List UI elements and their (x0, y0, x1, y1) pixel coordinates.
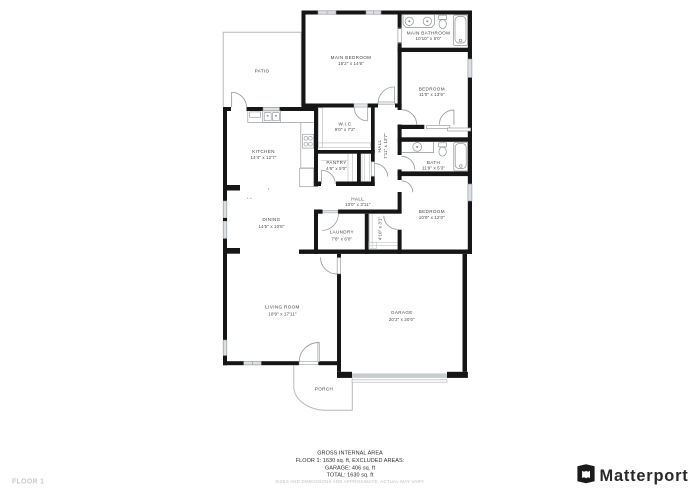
svg-text:GARAGE: GARAGE (391, 310, 413, 315)
svg-text:HALL: HALL (351, 196, 364, 201)
svg-text:20'3" x 20'0": 20'3" x 20'0" (389, 317, 415, 322)
svg-text:PORCH: PORCH (315, 386, 333, 391)
svg-text:10'10" x 5'0": 10'10" x 5'0" (416, 36, 442, 41)
svg-text:7'11" x 13'7": 7'11" x 13'7" (383, 133, 388, 159)
svg-text:BEDROOM: BEDROOM (419, 86, 445, 91)
svg-text:BATH: BATH (427, 160, 440, 165)
svg-text:9'0" x 7'2": 9'0" x 7'2" (335, 127, 356, 132)
svg-text:Matterport: Matterport (600, 467, 689, 485)
svg-text:LIVING ROOM: LIVING ROOM (265, 305, 299, 310)
svg-text:HALL: HALL (377, 139, 382, 152)
svg-text:4'10" x 3'1": 4'10" x 3'1" (377, 217, 382, 241)
svg-text:z: z (268, 187, 270, 191)
svg-text:14'4" x 12'7": 14'4" x 12'7" (251, 155, 277, 160)
svg-text:FLOOR 1: 1630 sq. ft, EXCLUDED: FLOOR 1: 1630 sq. ft, EXCLUDED AREAS: (296, 458, 405, 464)
svg-text:MAIN BATHROOM: MAIN BATHROOM (407, 30, 451, 35)
svg-text:BEDROOM: BEDROOM (419, 209, 445, 214)
svg-text:11'9" x 5'3": 11'9" x 5'3" (422, 165, 445, 170)
svg-text:W.I.C: W.I.C (339, 121, 352, 126)
svg-text:11'0" x 13'9": 11'0" x 13'9" (419, 92, 445, 97)
svg-text:PANTRY: PANTRY (326, 160, 346, 165)
svg-text:KITCHEN: KITCHEN (252, 149, 275, 154)
svg-text:4'6" x 5'0": 4'6" x 5'0" (326, 166, 347, 171)
svg-text:MAIN BEDROOM: MAIN BEDROOM (331, 55, 372, 60)
svg-text:13'0" x 3'11": 13'0" x 3'11" (345, 202, 371, 207)
svg-text:7'8" x 6'0": 7'8" x 6'0" (331, 237, 352, 242)
svg-text:SIZES AND DIMENSIONS ARE APPRO: SIZES AND DIMENSIONS ARE APPROXIMATE, AC… (275, 479, 425, 484)
svg-text:GARAGE: 406 sq. ft: GARAGE: 406 sq. ft (325, 465, 376, 471)
svg-text:DINING: DINING (262, 217, 280, 222)
svg-text:10'9" x 12'0": 10'9" x 12'0" (419, 215, 445, 220)
svg-text:TOTAL: 1630 sq. ft: TOTAL: 1630 sq. ft (327, 473, 374, 479)
svg-text:FLOOR 1: FLOOR 1 (12, 478, 44, 485)
svg-text:GROSS INTERNAL AREA: GROSS INTERNAL AREA (317, 451, 383, 457)
svg-text:15'2" x 14'6": 15'2" x 14'6" (338, 61, 364, 66)
svg-text:PATIO: PATIO (255, 68, 270, 73)
svg-text:18'9" x 17'11": 18'9" x 17'11" (268, 312, 297, 317)
svg-text:LAUNDRY: LAUNDRY (330, 230, 354, 235)
svg-text:14'5" x 10'8": 14'5" x 10'8" (259, 224, 285, 229)
